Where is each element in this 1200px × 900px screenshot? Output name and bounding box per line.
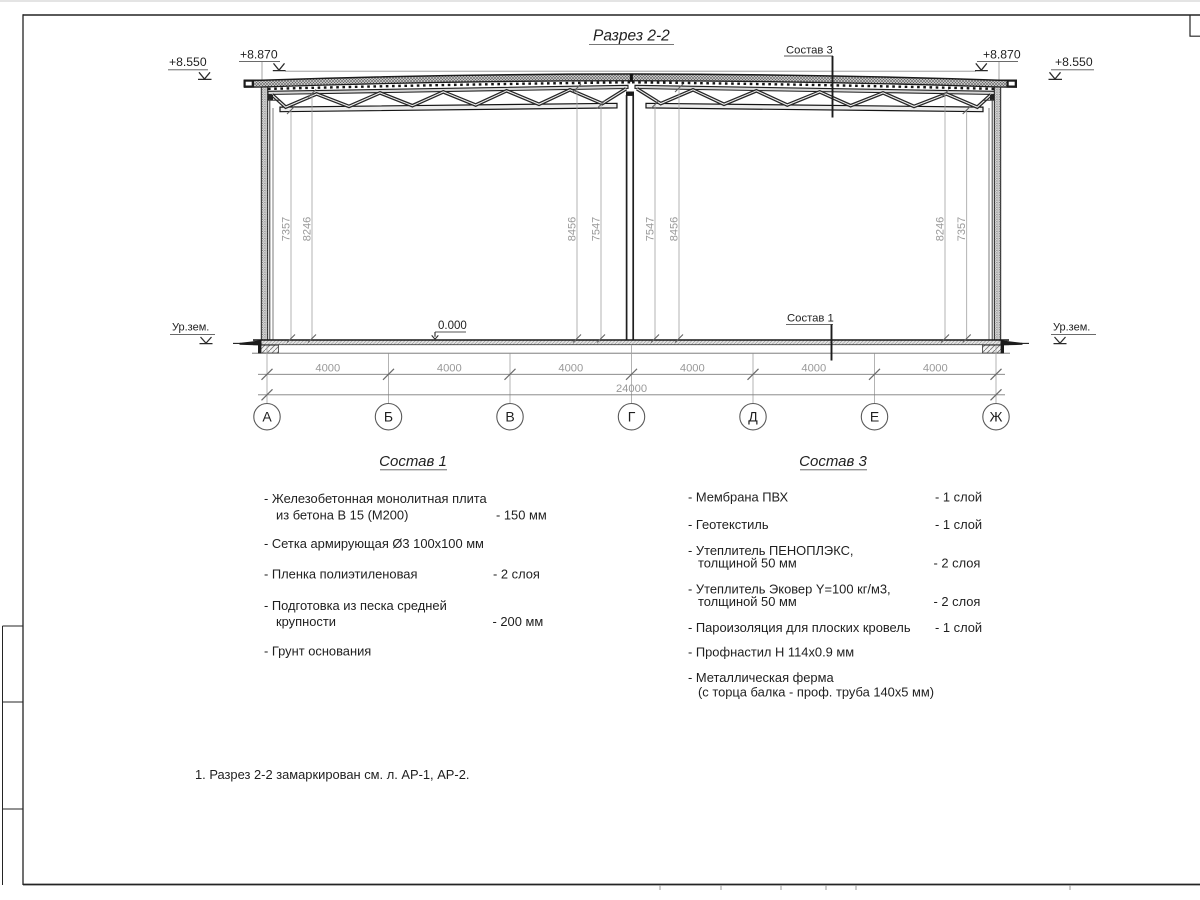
svg-text:- 150 мм: - 150 мм	[496, 508, 547, 523]
svg-text:- Подготовка из песка средней: - Подготовка из песка средней	[264, 598, 447, 613]
svg-text:из бетона В 15 (М200): из бетона В 15 (М200)	[276, 508, 408, 523]
svg-text:4000: 4000	[923, 363, 948, 375]
svg-text:4000: 4000	[437, 363, 462, 375]
svg-text:толщиной 50 мм: толщиной 50 мм	[698, 556, 797, 571]
svg-text:4000: 4000	[801, 363, 826, 375]
svg-text:толщиной 50 мм: толщиной 50 мм	[698, 594, 797, 609]
svg-text:Состав 1: Состав 1	[787, 313, 834, 325]
svg-text:4000: 4000	[558, 363, 583, 375]
svg-text:- 2 слоя: - 2 слоя	[934, 556, 981, 571]
svg-text:- 2 слоя: - 2 слоя	[493, 567, 540, 582]
svg-text:- Профнастил Н 114х0.9 мм: - Профнастил Н 114х0.9 мм	[688, 645, 854, 660]
svg-text:Е: Е	[870, 409, 879, 425]
svg-text:- Пароизоляция для плоских кро: - Пароизоляция для плоских кровель	[688, 620, 911, 635]
svg-text:В: В	[505, 409, 514, 425]
svg-text:+8.870: +8.870	[240, 48, 278, 62]
svg-text:- 1 слой: - 1 слой	[935, 620, 982, 635]
svg-text:Ур.зем.: Ур.зем.	[172, 322, 209, 334]
svg-text:Ж: Ж	[990, 409, 1003, 425]
svg-text:4000: 4000	[315, 363, 340, 375]
svg-text:4000: 4000	[680, 363, 705, 375]
svg-text:8246: 8246	[302, 217, 314, 241]
svg-text:Д: Д	[748, 409, 758, 425]
svg-text:8456: 8456	[567, 217, 579, 241]
svg-text:- 200 мм: - 200 мм	[493, 614, 544, 629]
svg-text:А: А	[262, 409, 272, 425]
svg-text:0.000: 0.000	[438, 320, 467, 332]
svg-text:- Металлическая ферма: - Металлическая ферма	[688, 670, 834, 685]
svg-text:Разрез 2-2: Разрез 2-2	[593, 28, 670, 45]
svg-text:крупности: крупности	[276, 614, 336, 629]
svg-text:8456: 8456	[669, 217, 681, 241]
svg-text:1. Разрез 2-2 замаркирован см.: 1. Разрез 2-2 замаркирован см. л. АР-1, …	[195, 767, 469, 782]
svg-text:- Геотекстиль: - Геотекстиль	[688, 517, 769, 532]
svg-text:- 1 слой: - 1 слой	[935, 490, 982, 505]
svg-text:- Железобетонная монолитная п: - Железобетонная монолитная плита	[264, 491, 488, 506]
svg-text:- 2 слоя: - 2 слоя	[934, 594, 981, 609]
svg-text:7547: 7547	[591, 217, 603, 241]
svg-text:Состав 1: Состав 1	[379, 453, 447, 470]
svg-text:+8.550: +8.550	[169, 55, 207, 69]
svg-text:24000: 24000	[616, 383, 647, 395]
svg-text:Ур.зем.: Ур.зем.	[1053, 322, 1090, 334]
svg-text:8246: 8246	[935, 217, 947, 241]
svg-text:- Грунт основания: - Грунт основания	[264, 644, 371, 659]
svg-text:- Мембрана ПВХ: - Мембрана ПВХ	[688, 490, 789, 505]
svg-text:- Пленка полиэтиленовая: - Пленка полиэтиленовая	[264, 567, 417, 582]
svg-text:- Сетка армирующая Ø3 100х100: - Сетка армирующая Ø3 100х100 мм	[264, 536, 484, 551]
svg-text:(с торца балка - проф. труба 1: (с торца балка - проф. труба 140х5 мм)	[698, 685, 934, 700]
svg-text:7547: 7547	[645, 217, 657, 241]
svg-text:- 1 слой: - 1 слой	[935, 517, 982, 532]
svg-text:+8.550: +8.550	[1055, 55, 1093, 69]
svg-text:Г: Г	[628, 409, 636, 425]
svg-text:+8.870: +8.870	[983, 48, 1021, 62]
svg-text:7357: 7357	[956, 217, 968, 241]
svg-text:Состав 3: Состав 3	[786, 45, 833, 57]
svg-text:Состав 3: Состав 3	[799, 453, 867, 470]
svg-text:7357: 7357	[281, 217, 293, 241]
svg-text:Б: Б	[384, 409, 393, 425]
